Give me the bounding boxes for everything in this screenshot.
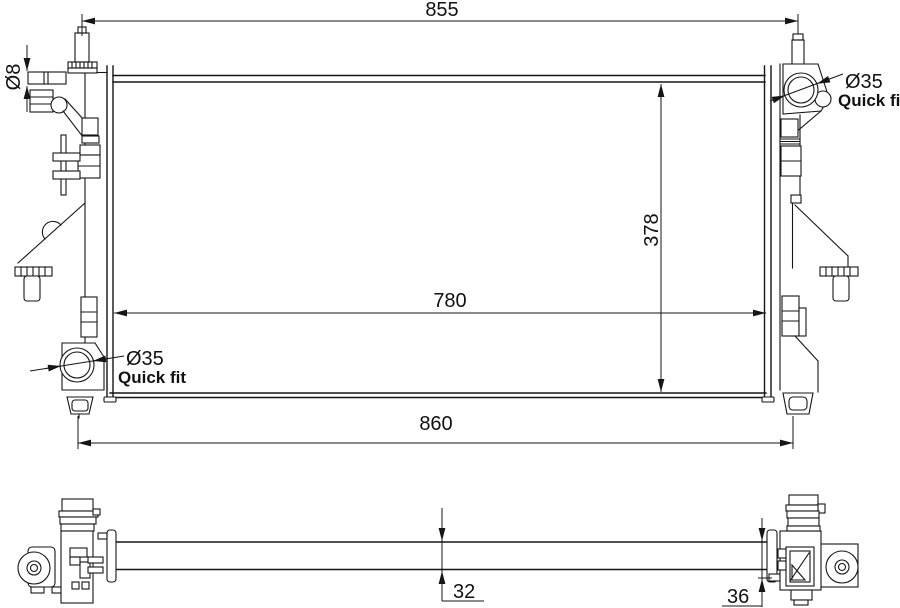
dim-end-tank-thickness-label: 36 [727,586,749,608]
bleed-pipe [792,40,804,66]
inlet-stub [30,90,53,112]
right-mount-bracket [791,195,858,301]
quickfit-bottom-size-label: Ø35 [126,348,164,370]
drain-fitting [67,397,93,418]
dim-core-width-label: 780 [433,290,466,312]
dim-quickfit-bottom-left: Ø35 Quick fit [30,348,186,387]
sensor-rod [61,135,66,195]
quickfit-bottom-type-label: Quick fit [118,368,186,387]
left-tank [15,27,107,418]
bottom-right-fitting [783,393,813,414]
dim-end-tank-thickness: 36 [722,518,772,608]
right-mount-eye [826,551,858,583]
radiator-technical-drawing: 855 780 860 378 Ø8 Ø35 Quick fit [0,0,900,608]
dim-top-width: 855 [82,0,798,36]
left-mount-bracket [15,203,85,301]
quickfit-top-size-label: Ø35 [845,71,883,93]
dim-core-height-label: 378 [641,213,663,246]
dimensions: 855 780 860 378 Ø8 Ø35 Quick fit [3,0,900,608]
radiator-core [110,76,768,398]
left-end-assembly [18,499,116,603]
dim-core-height: 378 [641,84,663,392]
dim-overflow-pipe: Ø8 [3,45,27,112]
left-side-plate [104,66,116,402]
filler-cap-ribs [72,62,92,68]
overflow-pipe [28,72,66,84]
quickfit-top-type-label: Quick fit [838,91,900,110]
dim-core-thickness-label: 32 [453,581,475,603]
left-mount-eye [18,552,50,584]
dim-bottom-width-label: 860 [419,413,452,435]
dim-core-thickness: 32 [442,508,484,603]
dim-overflow-pipe-label: Ø8 [3,64,25,91]
dim-core-width: 780 [114,290,766,313]
right-side-plate [762,66,774,402]
dim-top-width-label: 855 [425,0,458,21]
dim-bottom-width: 860 [78,413,793,449]
right-end-assembly [767,495,858,605]
bottom-left-quickfit-port [60,343,104,390]
drawing-canvas: 855 780 860 378 Ø8 Ø35 Quick fit [0,0,900,608]
